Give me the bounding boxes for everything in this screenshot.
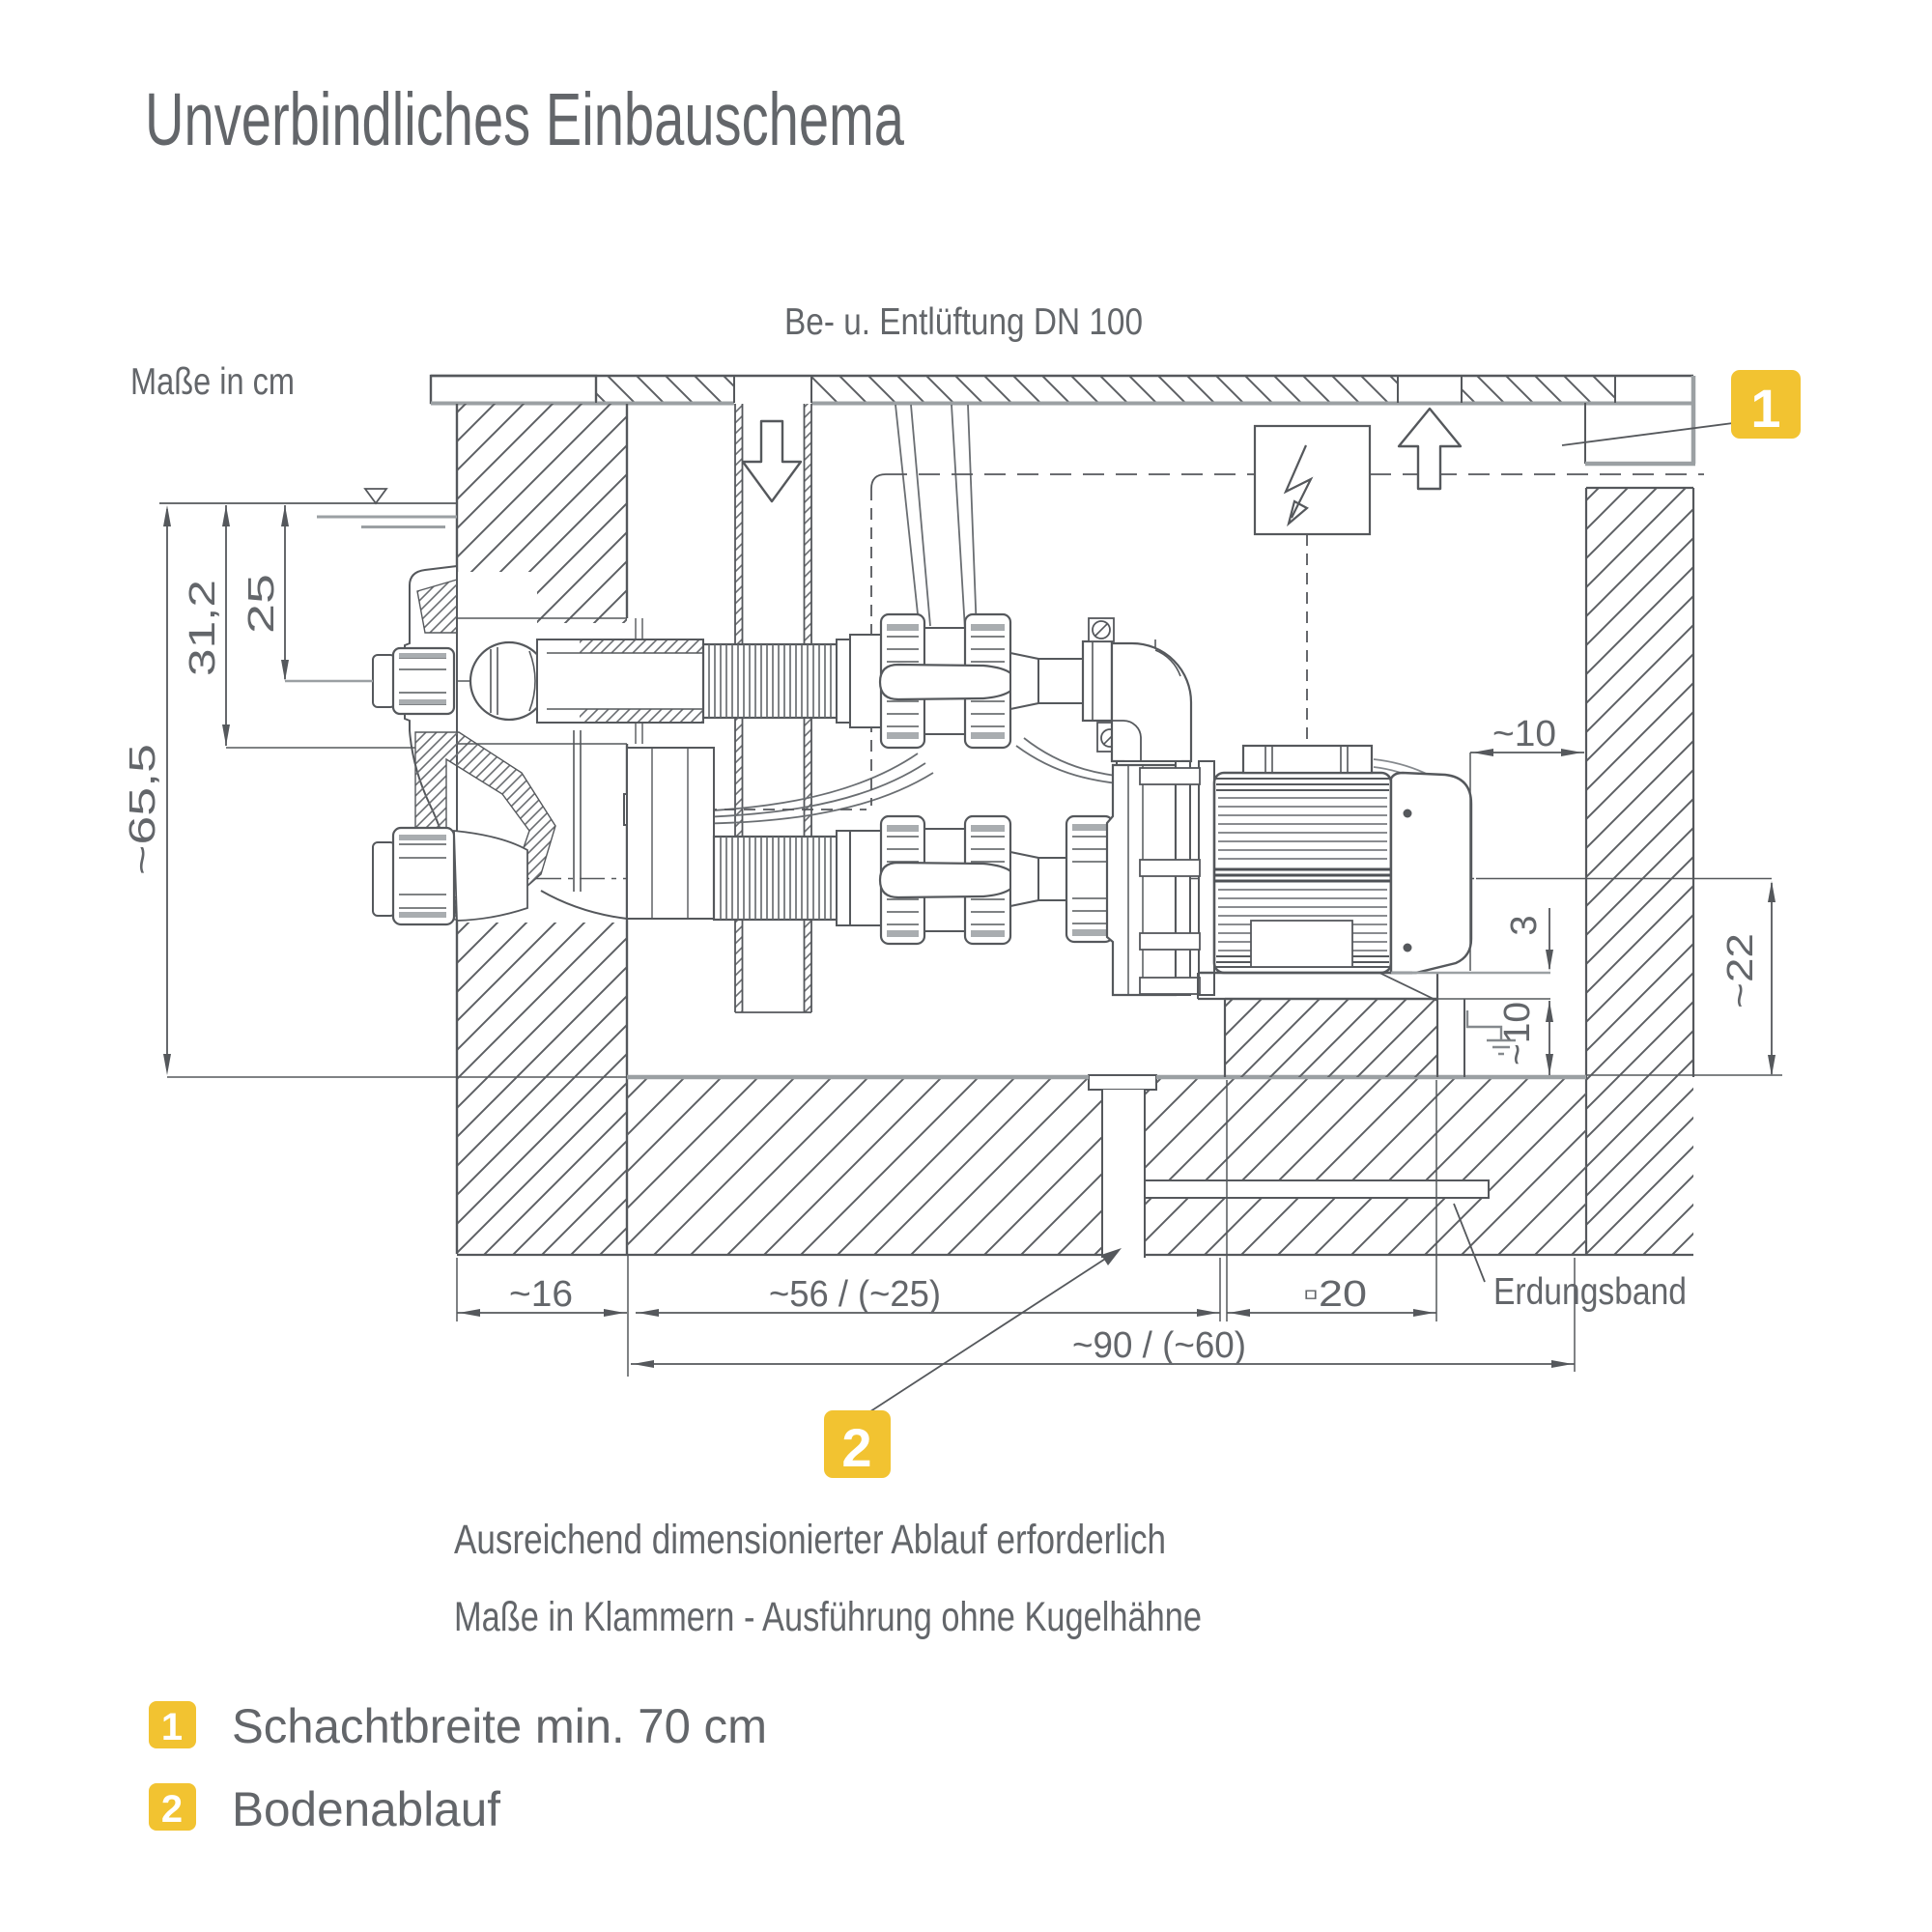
svg-text:~10: ~10: [1497, 1002, 1538, 1065]
svg-text:2: 2: [841, 1417, 871, 1478]
svg-text:1: 1: [1750, 378, 1780, 439]
svg-text:Unverbindliches Einbauschema: Unverbindliches Einbauschema: [145, 78, 904, 161]
svg-text:~16: ~16: [509, 1274, 573, 1315]
svg-text:Bodenablauf: Bodenablauf: [232, 1782, 500, 1836]
svg-text:1: 1: [161, 1706, 183, 1748]
svg-text:~56 / (~25): ~56 / (~25): [769, 1274, 941, 1315]
svg-text:Be- u. Entlüftung DN 100: Be- u. Entlüftung DN 100: [784, 301, 1143, 343]
svg-text:3: 3: [1504, 915, 1545, 935]
svg-text:Maße in Klammern - Ausführung: Maße in Klammern - Ausführung ohne Kugel…: [454, 1594, 1202, 1640]
svg-text:Ausreichend dimensionierter Ab: Ausreichend dimensionierter Ablauf erfor…: [454, 1517, 1166, 1563]
svg-text:25: 25: [241, 574, 282, 634]
svg-text:Maße in cm: Maße in cm: [130, 361, 295, 403]
svg-text:~90 / (~60): ~90 / (~60): [1072, 1325, 1246, 1366]
svg-text:2: 2: [161, 1788, 183, 1831]
svg-text:Schachtbreite min. 70 cm: Schachtbreite min. 70 cm: [232, 1699, 767, 1753]
svg-text:▫20: ▫20: [1303, 1274, 1367, 1315]
svg-text:Erdungsband: Erdungsband: [1493, 1271, 1687, 1313]
svg-text:~65,5: ~65,5: [123, 744, 163, 875]
svg-text:~22: ~22: [1720, 933, 1761, 1009]
svg-text:31,2: 31,2: [183, 580, 223, 676]
svg-text:~10: ~10: [1492, 714, 1556, 754]
